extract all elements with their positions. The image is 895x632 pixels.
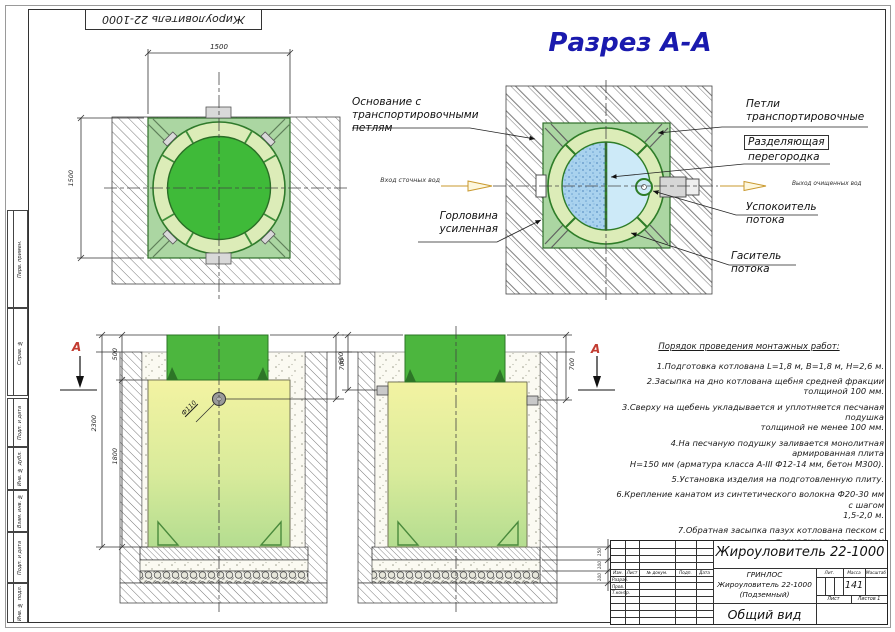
side-layer-dim: 150 xyxy=(598,548,603,556)
outlet-label: Выход очищенных вод xyxy=(792,181,867,187)
instruction-item: 5.Установка изделия на подготовленную пл… xyxy=(614,474,884,484)
callout-base: Основание с транспортировочными петлям xyxy=(352,96,504,134)
tb-row-prov: Пров. xyxy=(612,584,624,589)
side-section-marker: А xyxy=(591,342,600,356)
callout-loops: Петли транспортировочные xyxy=(746,98,886,124)
tb-col-podp: Подп. xyxy=(675,570,696,575)
front-section-marker: А xyxy=(72,340,81,354)
instructions-title: Порядок проведения монтажных работ: xyxy=(614,342,884,353)
tb-mass-header: Масса xyxy=(843,570,865,575)
tb-sheet: Лист xyxy=(816,597,851,602)
tb-product: Жироуловитель 22-1000 xyxy=(713,545,887,560)
plan-view xyxy=(77,49,348,302)
instruction-item: 2.Засыпка на дно котлована щебня средней… xyxy=(614,376,884,397)
tb-view-name: Общий вид xyxy=(713,607,816,622)
tb-row-tkontr: Т.контр. xyxy=(612,590,630,595)
tb-col-dokum: № докум. xyxy=(639,570,675,575)
tb-col-data: Дата xyxy=(696,570,713,575)
tb-mass-value: 141 xyxy=(843,580,865,591)
instruction-item: 4.На песчаную подушку заливается монолит… xyxy=(614,438,884,469)
side-dim-left: 600 xyxy=(337,352,345,364)
instruction-item: 3.Сверху на щебень укладывается и уплотн… xyxy=(614,402,884,433)
tb-col-izm: Изм. xyxy=(611,570,625,575)
plan-dim-width: 1500 xyxy=(189,43,249,51)
callout-neck: Горловина усиленная xyxy=(416,210,498,236)
inlet-arrow-icon xyxy=(441,181,492,191)
tb-col-list: Лист xyxy=(625,570,639,575)
side-layer-dim: 100 xyxy=(598,561,603,569)
callout-calm: Успокоитель потока xyxy=(746,201,856,227)
instruction-item: 6.Крепление канатом из синтетического во… xyxy=(614,489,884,520)
tb-scale-header: Масштаб xyxy=(865,570,887,575)
callout-damper: Гаситель потока xyxy=(731,250,831,276)
side-dim-right: 700 xyxy=(568,358,576,370)
tb-lit-header: Лит. xyxy=(816,570,843,575)
tb-doc-line2: (Подземный) xyxy=(713,590,816,599)
callout-divider-boxed: Разделяющая xyxy=(744,135,829,150)
section-cut-marker xyxy=(578,356,615,390)
drawing-sheet: Перв. примен. Справ. № Подп. и дата Инв.… xyxy=(0,0,895,632)
front-view xyxy=(60,326,352,612)
instruction-item: 1.Подготовка котлована L=1,8 м, В=1,8 м,… xyxy=(614,361,884,371)
outlet-arrow-icon xyxy=(720,182,766,191)
front-dim-total: 2300 xyxy=(90,415,98,432)
title-block: Изм. Лист № докум. Подп. Дата Разраб. Пр… xyxy=(610,540,888,625)
side-layer-dim: 100 xyxy=(598,573,603,581)
front-dim-body: 1800 xyxy=(111,448,119,465)
tb-row-razrab: Разраб. xyxy=(612,577,628,582)
tb-sheets: Листов 1 xyxy=(851,597,887,602)
callout-divider-line2: перегородка xyxy=(748,151,820,164)
tb-org: ГРИНЛОС xyxy=(713,570,816,579)
front-dim-neck: 500 xyxy=(111,348,119,360)
inlet-label: Вход сточных вод xyxy=(378,177,440,184)
plan-dim-height: 1500 xyxy=(67,170,75,187)
tb-doc-line1: Жироуловитель 22-1000 xyxy=(713,580,816,589)
section-title: Разрез А-А xyxy=(500,28,760,58)
section-cut-marker xyxy=(60,356,97,390)
